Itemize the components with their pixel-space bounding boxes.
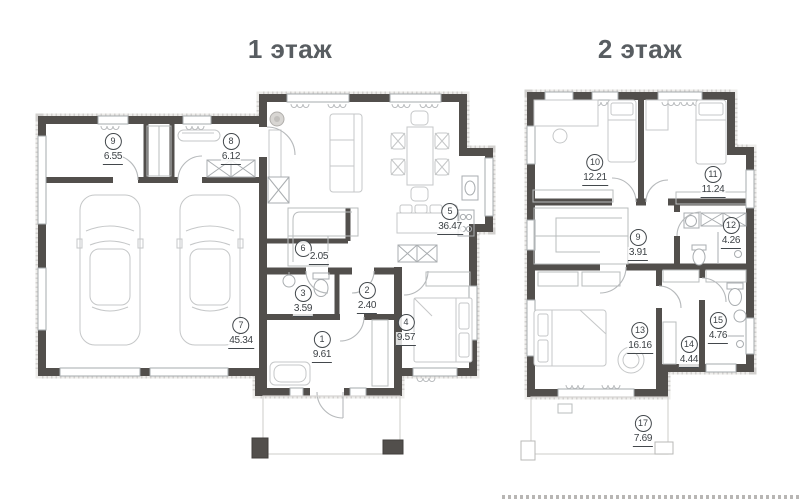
room-area: 16.16 (627, 340, 653, 354)
floor-1-title: 1 этаж (248, 34, 332, 65)
room-label-f1-6: 6 2.05 (277, 240, 329, 265)
room-area: 4.44 (679, 354, 699, 368)
room-area: 9.57 (396, 332, 416, 346)
room-label-f2-15: 15 4.76 (708, 312, 728, 344)
room-label-f1-1: 1 9.61 (312, 331, 332, 363)
room-number: 11 (704, 166, 721, 183)
room-label-f1-9: 9 6.55 (103, 133, 123, 165)
room-label-f1-8: 8 6.12 (221, 133, 241, 165)
room-area: 4.76 (708, 330, 728, 344)
room-label-f1-3: 3 3.59 (293, 285, 313, 317)
room-number: 13 (632, 322, 649, 339)
room-area: 4.26 (721, 235, 741, 249)
room-area: 36.47 (437, 221, 463, 235)
floor-2-title: 2 этаж (598, 34, 682, 65)
room-area: 2.40 (357, 300, 377, 314)
room-number: 9 (104, 133, 121, 150)
room-label-f2-17: 17 7.69 (633, 415, 653, 447)
room-number: 10 (587, 154, 604, 171)
room-label-f2-9: 9 3.91 (628, 229, 648, 261)
room-label-f2-13: 13 16.16 (627, 322, 653, 354)
room-number: 1 (313, 331, 330, 348)
room-area: 7.69 (633, 433, 653, 447)
room-label-f1-7: 7 45.34 (228, 317, 254, 349)
room-number: 14 (680, 336, 697, 353)
room-label-f1-4: 4 9.57 (396, 314, 416, 346)
room-number: 3 (294, 285, 311, 302)
room-area: 6.12 (221, 151, 241, 165)
room-area: 2.05 (309, 251, 329, 265)
floor-plan-sheet: 1 этаж 2 этаж 1 9.61 2 2.40 3 3.59 4 9.5… (0, 0, 800, 501)
room-number: 17 (634, 415, 651, 432)
room-label-f2-14: 14 4.44 (679, 336, 699, 368)
room-area: 3.59 (293, 303, 313, 317)
room-area: 45.34 (228, 335, 254, 349)
room-label-f2-10: 10 12.21 (582, 154, 608, 186)
room-number: 15 (709, 312, 726, 329)
room-label-f1-5: 5 36.47 (437, 203, 463, 235)
room-number: 2 (358, 282, 375, 299)
room-number: 4 (397, 314, 414, 331)
room-area: 9.61 (312, 349, 332, 363)
room-area: 3.91 (628, 247, 648, 261)
room-area: 12.21 (582, 172, 608, 186)
floor-2-plan (521, 92, 754, 460)
room-area: 11.24 (701, 184, 726, 198)
room-number: 7 (233, 317, 250, 334)
room-number: 5 (442, 203, 459, 220)
room-label-f2-12: 12 4.26 (721, 217, 741, 249)
room-label-f2-11: 11 11.24 (701, 166, 726, 198)
room-number: 8 (222, 133, 239, 150)
room-label-f1-2: 2 2.40 (357, 282, 377, 314)
room-number: 9 (629, 229, 646, 246)
room-area: 6.55 (103, 151, 123, 165)
floor-plan-canvas (0, 0, 800, 501)
room-number: 12 (722, 217, 739, 234)
